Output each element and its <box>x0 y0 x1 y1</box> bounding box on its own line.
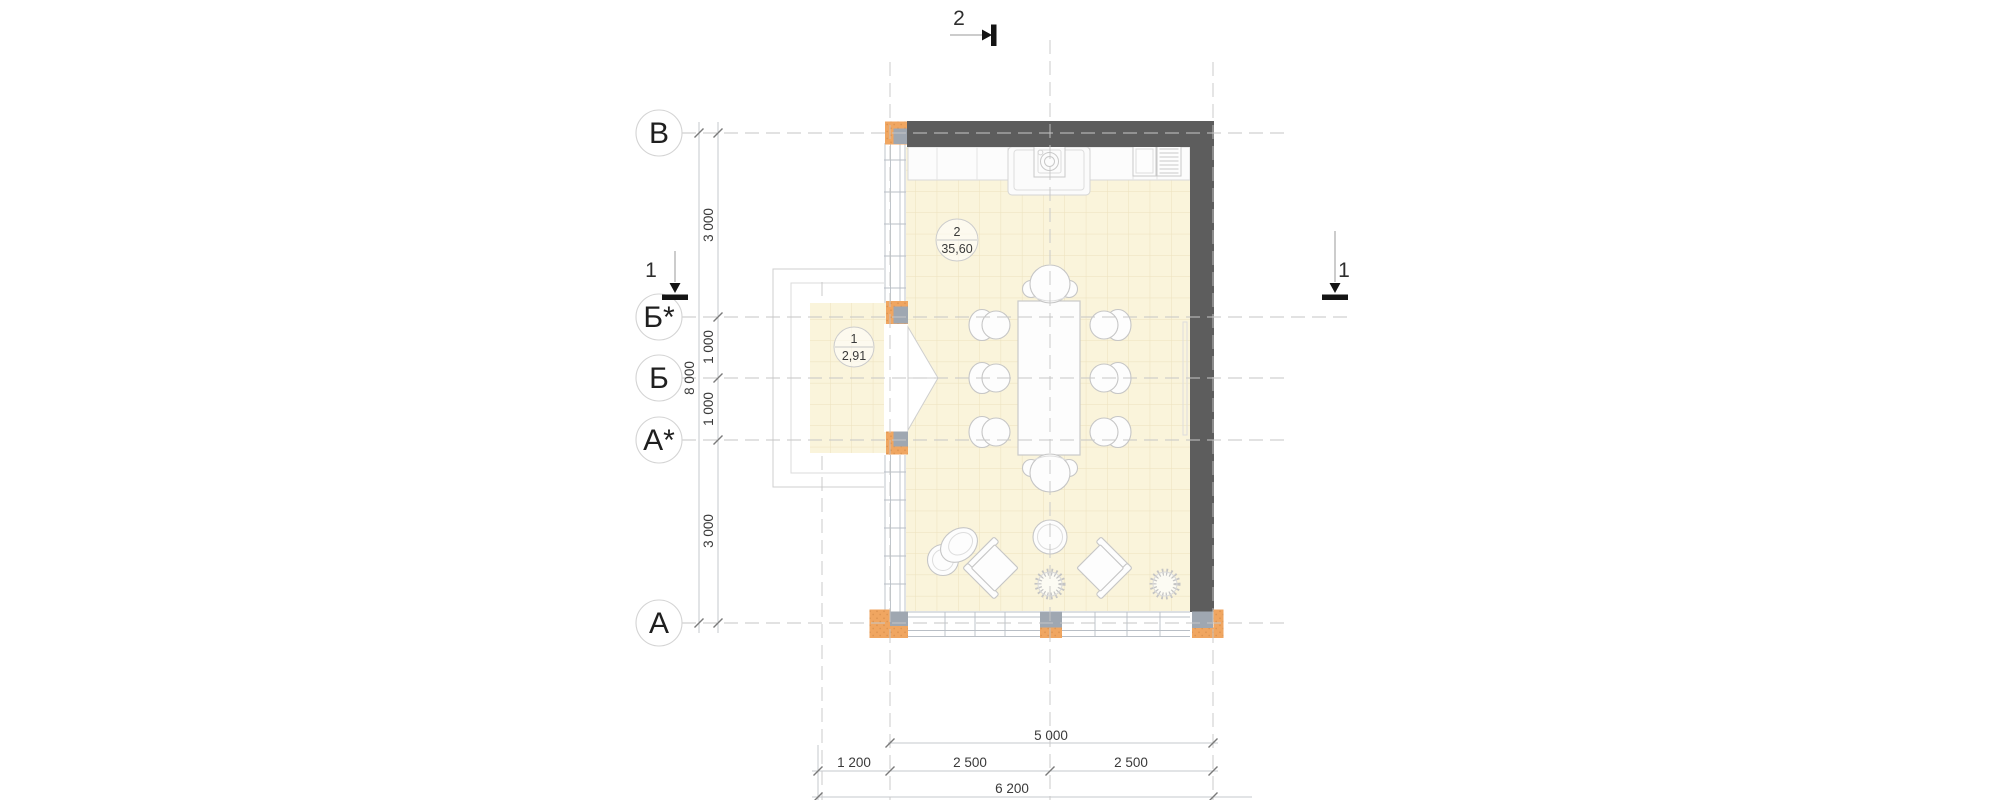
cooktop <box>1034 146 1065 177</box>
room-number: 1 <box>851 332 858 346</box>
column-bottom-left <box>870 610 909 639</box>
axis-label: Б* <box>643 301 675 334</box>
dimension-label: 8 000 <box>682 361 697 395</box>
dimension-label: 2 500 <box>1114 755 1148 770</box>
drainboard <box>1157 144 1181 176</box>
kitchen-sink <box>1133 146 1156 176</box>
section-label: 2 <box>953 7 965 30</box>
dining-chair <box>1090 417 1131 448</box>
axis-bubble-b: Б <box>636 355 682 401</box>
section-label: 1 <box>645 259 657 282</box>
room-stamp-1: 1 2,91 <box>834 327 874 367</box>
glazed-wall-left-upper <box>884 143 906 303</box>
section-marker-1-right: 1 <box>1322 231 1350 300</box>
plant <box>1153 572 1177 596</box>
dimension-label: 1 000 <box>701 330 716 364</box>
floor-plan-drawing: 2 35,60 1 2,91 В Б* Б А* А 3 000 1 000 1… <box>0 0 2000 800</box>
dimension-label: 3 000 <box>701 208 716 242</box>
dimension-label: 3 000 <box>701 514 716 548</box>
section-marker-2-top: 2 <box>950 7 997 46</box>
column-bottom-right <box>1192 610 1224 639</box>
dining-chair <box>1090 310 1131 341</box>
dimensions-bottom: 5 000 1 200 2 500 2 500 6 200 <box>812 728 1252 800</box>
column-bottom-middle <box>1040 612 1062 639</box>
dimensions-left: 3 000 1 000 1 000 3 000 8 000 <box>682 122 723 633</box>
room-number: 2 <box>954 225 961 239</box>
axis-bubble-b-star: Б* <box>636 294 682 340</box>
dimension-label: 1 000 <box>701 392 716 426</box>
section-label: 1 <box>1338 259 1350 282</box>
dimension-label: 2 500 <box>953 755 987 770</box>
section-marker-1-left: 1 <box>645 251 688 300</box>
axis-label: А <box>649 607 669 640</box>
room-stamp-2: 2 35,60 <box>936 219 978 261</box>
dimension-label: 1 200 <box>837 755 871 770</box>
axis-bubble-v: В <box>636 110 682 156</box>
dining-chair <box>969 417 1010 448</box>
column-porch-bottom <box>886 432 908 455</box>
axis-label: В <box>649 117 669 150</box>
column-porch-top <box>886 301 908 324</box>
axis-label: А* <box>643 424 675 457</box>
room-area: 35,60 <box>941 242 972 256</box>
dimension-label: 6 200 <box>995 781 1029 796</box>
dimension-label: 5 000 <box>1034 728 1068 743</box>
floor-plan-page: 2 35,60 1 2,91 В Б* Б А* А 3 000 1 000 1… <box>0 0 2000 800</box>
axis-bubble-a-star: А* <box>636 417 682 463</box>
dining-chair <box>969 310 1010 341</box>
axis-label: Б <box>649 362 669 395</box>
room-area: 2,91 <box>842 349 866 363</box>
axis-bubble-a: А <box>636 600 682 646</box>
glazed-wall-left-lower <box>884 455 906 612</box>
